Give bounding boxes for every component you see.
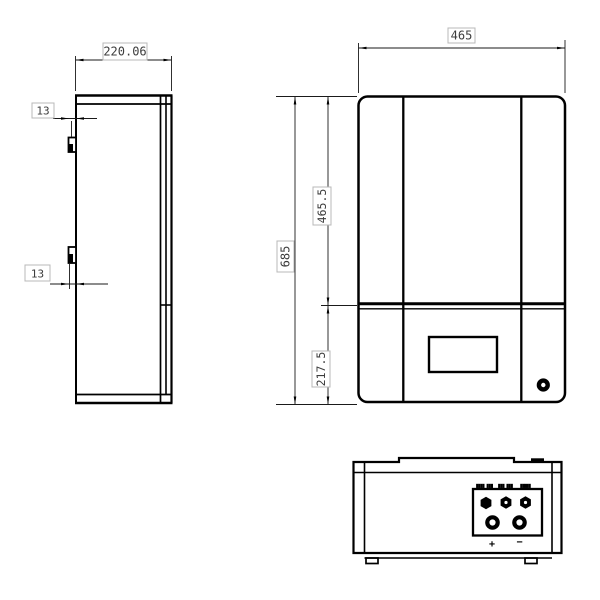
terminal-panel-outline (473, 489, 542, 536)
dc-terminal-negative-hole (516, 519, 522, 525)
drawing-sheet: ████ ███ ███ ███ █████ + − (0, 0, 600, 600)
arrowhead (61, 283, 69, 286)
dim-hook-bottom-label: 13 (31, 268, 44, 281)
port-label-3: █████ (519, 483, 531, 488)
wall-hook-top (69, 138, 77, 153)
arrowhead (557, 47, 565, 50)
bottom-view: ████ ███ ███ ███ █████ + − (354, 458, 562, 564)
dim-lower-height-label: 217.5 (314, 352, 328, 387)
arrowhead (327, 298, 330, 306)
arrowhead (76, 117, 84, 120)
hex-terminal-3-pin (524, 501, 527, 504)
port-label-2: ███ ███ (497, 483, 514, 488)
front-view (359, 97, 566, 403)
arrowhead (327, 397, 330, 405)
port-label-1: ████ ███ (475, 483, 494, 488)
arrowhead (76, 59, 84, 62)
polarity-positive-symbol: + (489, 539, 495, 550)
arrowhead (327, 306, 330, 314)
dim-total-height-label: 685 (279, 246, 293, 268)
wall-hook-bottom (69, 247, 77, 263)
mounting-foot-left (366, 558, 378, 564)
terminal-panel: ████ ███ ███ ███ █████ + − (473, 483, 542, 550)
status-led (539, 381, 548, 390)
dim-upper-height-label: 465.5 (315, 189, 329, 224)
dc-terminal-positive-hole (489, 519, 495, 525)
arrowhead (294, 97, 297, 105)
front-outline (359, 97, 566, 403)
dim-side-depth-label: 220.06 (103, 45, 146, 59)
display-window (429, 337, 497, 372)
arrowhead (164, 59, 172, 62)
drawing-canvas: ████ ███ ███ ███ █████ + − (0, 0, 600, 600)
polarity-negative-symbol: − (516, 537, 522, 548)
dimension-labels: 220.06 13 13 465 685 465.5 217.5 (25, 28, 475, 387)
dimension-side-depth (76, 56, 172, 91)
arrowhead (76, 283, 84, 286)
hex-terminal-2-pin (504, 501, 507, 504)
hex-terminal-1-icon (481, 497, 492, 509)
mounting-foot-right (525, 558, 537, 564)
arrowhead (327, 97, 330, 105)
dim-front-width-label: 465 (451, 29, 473, 43)
dimension-front-width (359, 40, 566, 93)
arrowhead (294, 397, 297, 405)
dimension-hook-bottom (50, 264, 108, 289)
dim-hook-top-label: 13 (36, 105, 49, 118)
arrowhead (61, 117, 69, 120)
bottom-top-tab (531, 458, 544, 462)
side-view (69, 96, 173, 404)
arrowhead (359, 47, 367, 50)
